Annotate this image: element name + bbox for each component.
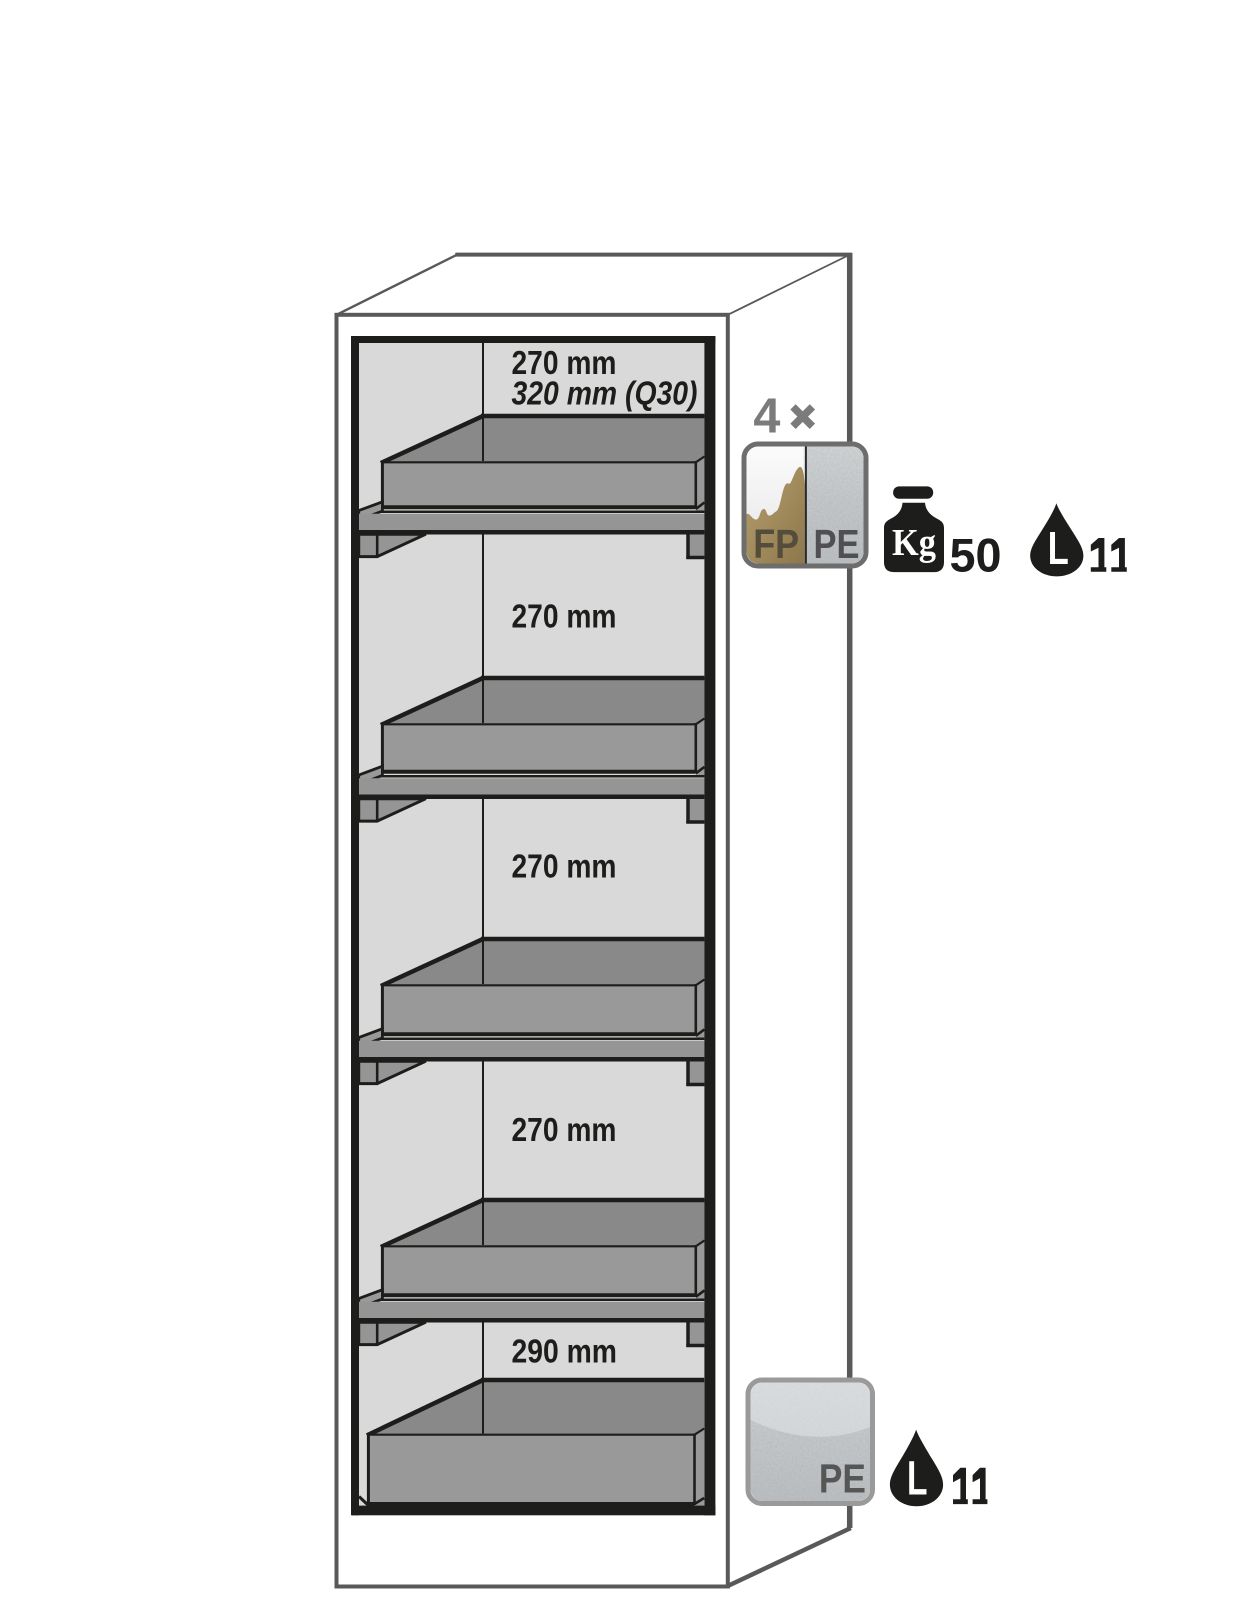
svg-text:270 mm: 270 mm xyxy=(512,848,617,885)
svg-text:270 mm: 270 mm xyxy=(512,598,617,635)
svg-text:L: L xyxy=(907,1453,928,1506)
svg-text:PE: PE xyxy=(819,1456,866,1502)
svg-text:50: 50 xyxy=(950,529,1002,582)
svg-text:4: 4 xyxy=(753,390,780,444)
svg-text:290 mm: 290 mm xyxy=(512,1333,618,1370)
svg-text:PE: PE xyxy=(814,521,860,567)
svg-text:320 mm (Q30): 320 mm (Q30) xyxy=(512,375,698,412)
svg-text:FP: FP xyxy=(753,521,799,567)
svg-text:L: L xyxy=(1048,522,1069,574)
svg-text:Kg: Kg xyxy=(892,522,936,564)
svg-text:270 mm: 270 mm xyxy=(512,1111,617,1148)
